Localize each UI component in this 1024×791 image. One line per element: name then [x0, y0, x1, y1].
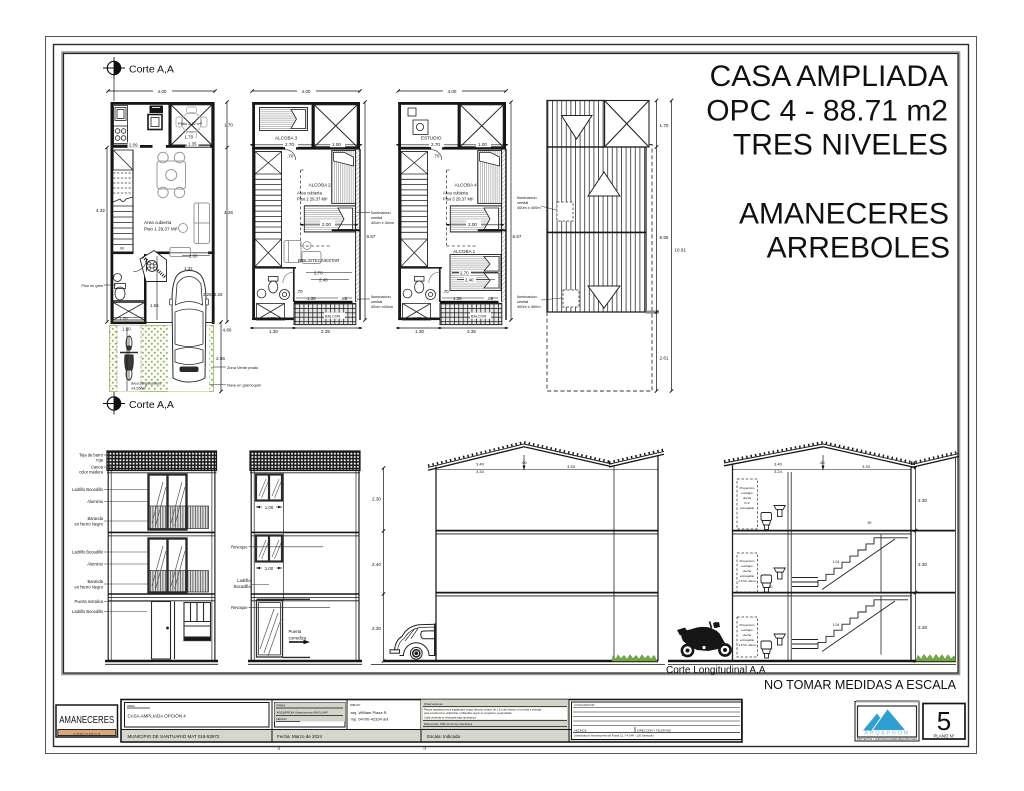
svg-text:1.35: 1.35	[453, 296, 462, 301]
svg-text:Puerta metalica: Puerta metalica	[75, 599, 104, 604]
svg-text:Area cubierta: Area cubierta	[144, 220, 172, 225]
svg-text:4.00: 4.00	[448, 89, 457, 94]
svg-text:400m x 400m: 400m x 400m	[517, 205, 541, 210]
svg-text:1.5 Mt. altura: 1.5 Mt. altura	[738, 579, 756, 583]
svg-text:400m x 400m: 400m x 400m	[517, 304, 541, 309]
svg-text:2.30: 2.30	[372, 497, 381, 502]
svg-text:Patio 2,62 m²: Patio 2,62 m²	[178, 121, 202, 126]
svg-text:2.28: 2.28	[918, 625, 927, 630]
svg-text:2.70: 2.70	[460, 271, 469, 276]
svg-text:5: 5	[937, 706, 951, 736]
svg-text:VECINOS: VECINOS	[574, 729, 587, 733]
svg-text:1.70: 1.70	[224, 123, 233, 128]
svg-text:22: 22	[423, 746, 427, 750]
svg-text:entregable: entregable	[740, 638, 755, 642]
svg-text:1.30: 1.30	[269, 329, 278, 334]
svg-text:2.70: 2.70	[285, 142, 294, 147]
svg-text:Observaciones: Observaciones	[424, 702, 443, 706]
svg-text:.90: .90	[867, 521, 872, 525]
svg-text:CASA AMPLIADA OPCIÓN 4: CASA AMPLIADA OPCIÓN 4	[128, 713, 187, 719]
svg-text:1.32: 1.32	[184, 266, 193, 271]
svg-text:en hierro Negro: en hierro Negro	[75, 585, 104, 590]
svg-text:2.40: 2.40	[372, 562, 381, 567]
svg-text:.70: .70	[287, 154, 294, 159]
svg-text:22: 22	[277, 746, 281, 750]
svg-text:Corte A,A: Corte A,A	[129, 64, 174, 76]
svg-text:ducha: ducha	[743, 496, 752, 500]
svg-text:MUNICIPIO DE SANTUARIO MAT 018: MUNICIPIO DE SANTUARIO MAT 018-53972	[128, 734, 220, 739]
svg-text:Escala: Indicada: Escala: Indicada	[427, 734, 461, 739]
svg-text:6.67: 6.67	[513, 234, 522, 239]
svg-text:.70: .70	[443, 289, 450, 294]
svg-text:1.70: 1.70	[185, 135, 194, 140]
svg-text:Ladrillo: Ladrillo	[237, 578, 251, 583]
svg-text:.60: .60	[819, 460, 825, 465]
svg-text:3.40: 3.40	[774, 462, 783, 467]
svg-text:Bocadillo: Bocadillo	[234, 584, 251, 589]
svg-text:6.67: 6.67	[367, 234, 376, 239]
svg-text:2.26: 2.26	[203, 292, 212, 297]
svg-text:3.40: 3.40	[476, 462, 485, 467]
svg-text:PLANO N°: PLANO N°	[933, 733, 954, 738]
svg-text:Area cubierta: Area cubierta	[297, 191, 323, 196]
svg-text:Piso 3 29,37 Mt²: Piso 3 29,37 Mt²	[443, 197, 474, 202]
svg-text:Aluminio: Aluminio	[87, 562, 103, 567]
svg-text:4.80: 4.80	[223, 328, 232, 333]
svg-text:2.00: 2.00	[468, 222, 477, 227]
svg-text:CASA AMPLIADA: CASA AMPLIADA	[710, 60, 948, 93]
svg-text:u r b a n i z a d o r a: u r b a n i z a d o r a	[73, 731, 100, 735]
svg-text:.85: .85	[487, 296, 494, 301]
svg-text:Corte A,A: Corte A,A	[129, 399, 174, 411]
svg-text:Proyeccion: Proyeccion	[740, 486, 755, 490]
svg-text:HECHO: HECHO	[277, 717, 288, 721]
svg-text:2.70: 2.70	[314, 271, 323, 276]
svg-text:90: 90	[120, 247, 124, 251]
svg-text:2.26: 2.26	[214, 292, 223, 297]
svg-text:1.04: 1.04	[833, 623, 840, 627]
svg-text:ALCOBA 1: ALCOBA 1	[453, 249, 476, 254]
svg-text:enchape: enchape	[741, 628, 753, 632]
svg-text:Ladrillo Bocadillo: Ladrillo Bocadillo	[72, 487, 104, 492]
svg-text:40cm x40cm: 40cm x40cm	[371, 304, 393, 309]
svg-text:Baranda: Baranda	[88, 579, 104, 584]
svg-text:2.30: 2.30	[372, 626, 381, 631]
svg-text:Fecha: Marzo de 2024: Fecha: Marzo de 2024	[277, 734, 323, 739]
svg-text:área parqueadero: área parqueadero	[131, 382, 161, 386]
svg-text:2.56: 2.56	[216, 356, 225, 361]
svg-text:BALCON: BALCON	[325, 314, 341, 318]
svg-text:3.33: 3.33	[567, 464, 576, 469]
svg-text:ducha: ducha	[743, 569, 752, 573]
svg-text:ducha: ducha	[743, 633, 752, 637]
svg-text:entregable: entregable	[740, 506, 755, 510]
svg-text:2.35: 2.35	[321, 329, 330, 334]
svg-text:1.00: 1.00	[265, 566, 274, 571]
svg-text:1.30: 1.30	[415, 329, 424, 334]
svg-text:10.91: 10.91	[675, 248, 687, 253]
svg-text:para construccion unifamiliar: para construccion unifamiliar o bifamili…	[424, 711, 512, 715]
svg-text:Proyeccion: Proyeccion	[740, 559, 755, 563]
svg-text:2.35: 2.35	[467, 329, 476, 334]
svg-text:ARREBOLES: ARREBOLES	[767, 232, 950, 265]
svg-text:PROYECTOS Y CONSTRUCCIONES ARQ: PROYECTOS Y CONSTRUCCIONES ARQUITECTURA	[857, 738, 917, 741]
svg-text:1.5 Mt. altura: 1.5 Mt. altura	[738, 643, 756, 647]
svg-text:roja: roja	[96, 458, 104, 463]
svg-text:FIRMA: FIRMA	[277, 704, 286, 708]
svg-text:3.33: 3.33	[862, 464, 871, 469]
svg-text:Piso 1 29,37 Mt²: Piso 1 29,37 Mt²	[144, 227, 178, 232]
svg-text:3.34: 3.34	[476, 469, 485, 474]
svg-text:h=2: h=2	[744, 501, 749, 505]
svg-text:Ladrillo Bocadillo: Ladrillo Bocadillo	[72, 550, 104, 555]
svg-text:1.04: 1.04	[833, 560, 840, 564]
svg-text:2.40: 2.40	[319, 278, 328, 283]
svg-text:4.00: 4.00	[158, 89, 167, 94]
svg-text:1.35: 1.35	[307, 296, 316, 301]
svg-text:1.20: 1.20	[413, 316, 422, 321]
svg-text:DIBUJO: DIBUJO	[350, 703, 361, 707]
svg-text:mp. 04700-42334 ant: mp. 04700-42334 ant	[351, 717, 390, 722]
svg-text:2.70: 2.70	[431, 142, 440, 147]
svg-text:4.26: 4.26	[224, 210, 233, 215]
svg-text:Cada vivienda se levantara baj: Cada vivienda se levantara bajo aprobaci…	[424, 716, 477, 720]
svg-text:.70: .70	[433, 154, 440, 159]
svg-text:Corte Longitudinal A,A: Corte Longitudinal A,A	[666, 665, 766, 676]
svg-text:BALCON: BALCON	[471, 314, 487, 318]
svg-text:4.32: 4.32	[96, 208, 105, 213]
svg-text:ARQ&PROM: ARQ&PROM	[864, 731, 909, 737]
svg-text:.60: .60	[521, 460, 527, 465]
svg-text:corrediza: corrediza	[289, 636, 307, 641]
svg-text:.85: .85	[341, 296, 348, 301]
svg-text:ALCOBA 4: ALCOBA 4	[455, 183, 478, 188]
svg-text:ALCOBA 3: ALCOBA 3	[275, 136, 298, 141]
svg-text:2.09: 2.09	[129, 143, 138, 148]
svg-text:arq. William Plaza R.: arq. William Plaza R.	[351, 710, 388, 715]
svg-text:OPC 4 - 88.71 m2: OPC 4 - 88.71 m2	[706, 95, 948, 128]
svg-text:14,26mt²: 14,26mt²	[131, 387, 147, 391]
svg-text:2.30: 2.30	[918, 562, 927, 567]
svg-text:Urbanizacion Amaneceres del Ro: Urbanizacion Amaneceres del Rosal CL 7 #…	[574, 734, 654, 738]
svg-text:Nave en gramoquin: Nave en gramoquin	[227, 383, 261, 388]
svg-text:1.20: 1.20	[119, 316, 128, 321]
svg-text:2.00: 2.00	[322, 222, 331, 227]
svg-text:color madera: color madera	[79, 470, 104, 475]
svg-text:Aluminio: Aluminio	[87, 499, 103, 504]
svg-text:1.35: 1.35	[188, 141, 197, 146]
svg-text:6.55: 6.55	[660, 235, 669, 240]
svg-text:Piso 2 29,37 Mt²: Piso 2 29,37 Mt²	[297, 197, 328, 202]
svg-text:Planos arquitectonicos legaliz: Planos arquitectonicos legalizados segun…	[424, 708, 541, 712]
svg-text:1.00: 1.00	[189, 254, 198, 259]
svg-text:Referencias: NSR-10 norma colo: Referencias: NSR-10 norma colombiana	[424, 722, 473, 726]
svg-text:2.30: 2.30	[918, 498, 927, 503]
svg-text:Area cubierta: Area cubierta	[443, 191, 469, 196]
svg-text:ARQ&PROM Urbanizamos ANGULAR: ARQ&PROM Urbanizamos ANGULAR	[277, 711, 329, 715]
svg-text:ALCOBA 2: ALCOBA 2	[309, 183, 332, 188]
svg-text:AMANECERES: AMANECERES	[59, 714, 114, 726]
svg-text:.70: .70	[297, 289, 304, 294]
svg-text:40cm x 40cm: 40cm x 40cm	[371, 220, 394, 225]
svg-text:AMANECERES: AMANECERES	[739, 198, 949, 231]
svg-text:Revoque: Revoque	[231, 545, 248, 550]
svg-text:TRES NIVELES: TRES NIVELES	[733, 129, 948, 162]
svg-text:4.00: 4.00	[302, 89, 311, 94]
svg-text:2.40: 2.40	[465, 278, 474, 283]
svg-text:1.00: 1.00	[332, 142, 341, 147]
svg-text:BIBLIOTECA/ESTAR: BIBLIOTECA/ESTAR	[298, 258, 339, 263]
svg-text:1.50: 1.50	[122, 327, 131, 332]
svg-text:1.00: 1.00	[265, 505, 274, 510]
svg-text:DIRECCION Y TELEFONO: DIRECCION Y TELEFONO	[637, 729, 672, 733]
svg-text:1.00: 1.00	[478, 142, 487, 147]
svg-text:Piso en gres: Piso en gres	[81, 283, 103, 288]
svg-text:LOCALIZACION: LOCALIZACION	[574, 703, 595, 707]
svg-text:1.20: 1.20	[267, 316, 276, 321]
svg-text:entregable: entregable	[740, 574, 755, 578]
svg-text:Zona Verde prado: Zona Verde prado	[227, 365, 258, 370]
svg-text:Puerta: Puerta	[289, 629, 302, 634]
svg-text:OBRA: OBRA	[127, 704, 135, 708]
svg-text:1.70: 1.70	[660, 123, 669, 128]
svg-text:3.24: 3.24	[774, 469, 783, 474]
svg-text:Proyeccion: Proyeccion	[740, 623, 755, 627]
svg-text:Baranda: Baranda	[88, 516, 104, 521]
svg-text:enchape: enchape	[741, 491, 753, 495]
svg-text:enchape: enchape	[741, 564, 753, 568]
svg-text:Revoque: Revoque	[231, 605, 248, 610]
svg-text:en hierro Negro: en hierro Negro	[75, 522, 104, 527]
svg-text:2.61: 2.61	[660, 356, 669, 361]
svg-text:ESTUDIO: ESTUDIO	[421, 136, 442, 141]
svg-text:NO TOMAR MEDIDAS A ESCALA: NO TOMAR MEDIDAS A ESCALA	[764, 678, 957, 692]
svg-text:1.55: 1.55	[150, 303, 159, 308]
svg-text:Ladrillo Bocadillo: Ladrillo Bocadillo	[72, 609, 104, 614]
